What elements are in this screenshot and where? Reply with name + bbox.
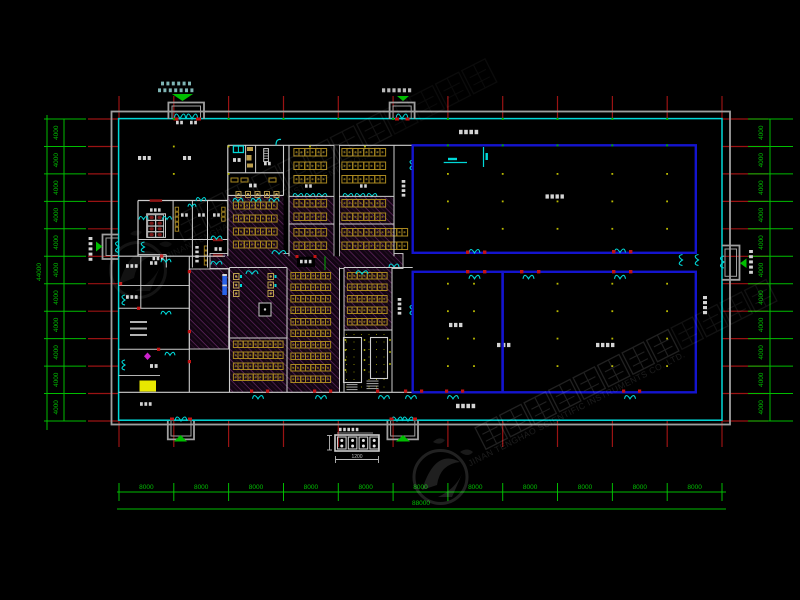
svg-text:4000: 4000	[758, 153, 765, 168]
svg-text:4000: 4000	[758, 372, 765, 387]
svg-text:4000: 4000	[53, 125, 60, 140]
svg-text:4000: 4000	[758, 345, 765, 360]
svg-text:4000: 4000	[53, 400, 60, 415]
svg-text:8000: 8000	[139, 484, 154, 491]
svg-text:8000: 8000	[249, 484, 264, 491]
svg-text:44000: 44000	[36, 263, 43, 281]
svg-text:8000: 8000	[358, 484, 373, 491]
svg-text:8000: 8000	[578, 484, 593, 491]
svg-text:8000: 8000	[304, 484, 319, 491]
svg-text:8000: 8000	[194, 484, 209, 491]
svg-text:8000: 8000	[468, 484, 483, 491]
svg-text:4000: 4000	[53, 345, 60, 360]
svg-text:4000: 4000	[758, 317, 765, 332]
svg-text:4000: 4000	[758, 125, 765, 140]
svg-text:1200: 1200	[351, 454, 362, 460]
svg-text:4000: 4000	[53, 207, 60, 222]
svg-text:4000: 4000	[53, 317, 60, 332]
svg-text:4000: 4000	[53, 262, 60, 277]
svg-text:4000: 4000	[758, 400, 765, 415]
svg-text:4000: 4000	[758, 262, 765, 277]
svg-text:4000: 4000	[53, 153, 60, 168]
svg-text:4000: 4000	[758, 207, 765, 222]
svg-text:4000: 4000	[53, 290, 60, 305]
svg-text:8000: 8000	[633, 484, 648, 491]
svg-text:4000: 4000	[53, 180, 60, 195]
svg-text:8000: 8000	[523, 484, 538, 491]
svg-text:4000: 4000	[53, 235, 60, 250]
svg-text:4000: 4000	[53, 372, 60, 387]
svg-text:8000: 8000	[687, 484, 702, 491]
svg-text:4000: 4000	[758, 235, 765, 250]
svg-text:4000: 4000	[758, 180, 765, 195]
